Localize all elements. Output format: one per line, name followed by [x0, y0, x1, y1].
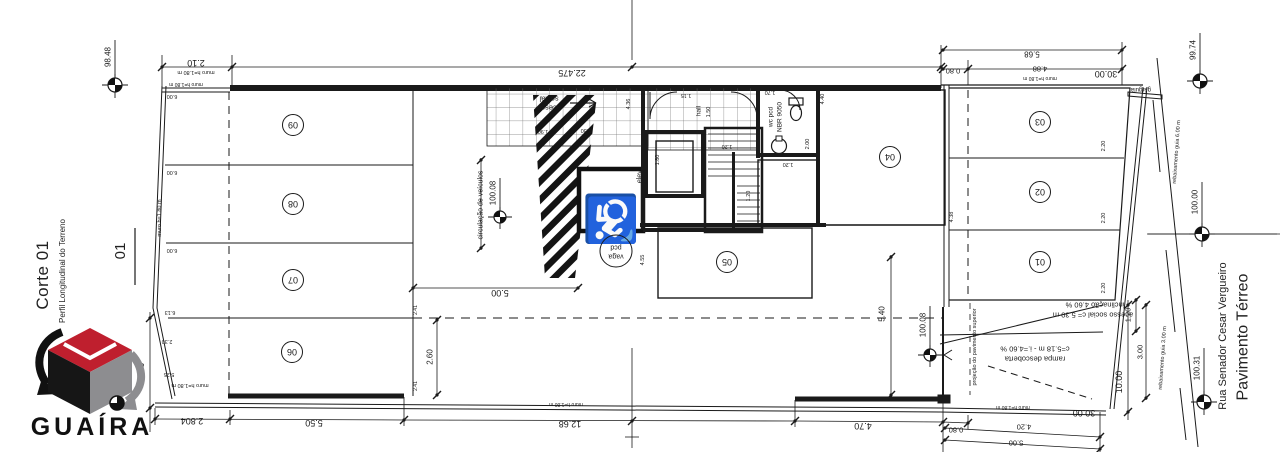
dim-label: 2.30: [162, 338, 173, 344]
level-marker: 100.31: [1191, 348, 1217, 415]
note-label: rampa descoberta: [1004, 355, 1065, 364]
dim-label: 1.20: [746, 191, 752, 202]
dim-label: 4.38: [949, 212, 955, 223]
note-label: rebaixamento guia 3.00 m: [1158, 326, 1168, 390]
level-value: 100.00: [1191, 189, 1200, 214]
dim-label: 1.80: [655, 155, 661, 166]
dim-label: 30.00: [1073, 408, 1096, 418]
dim-label: 2.41: [413, 305, 419, 315]
dim-label: 3.00: [1136, 345, 1145, 360]
stall-number: 02: [1035, 187, 1045, 197]
dim-label: 1.90: [538, 128, 549, 134]
zone-label: pcd: [610, 244, 621, 251]
street-name-label: Rua Senador Cesar Vergueiro: [1218, 262, 1230, 409]
dim-label: 10.00: [1114, 371, 1124, 394]
level-value: 100.08: [919, 312, 928, 337]
logo-wordmark: GUAÍRA: [31, 414, 154, 440]
stall-number: 06: [287, 347, 297, 357]
dim-label: 30.00: [1095, 69, 1118, 79]
dim-label: 5.68: [1024, 50, 1040, 59]
level-value: 100.08: [489, 180, 498, 205]
level-marker: 100.00: [1147, 182, 1277, 247]
dim-label: muro h=1.80 m: [171, 382, 209, 388]
section-mark-label: 01: [113, 243, 129, 260]
level-marker: 100.08: [918, 306, 942, 367]
dim-label: muro h=1.80 m: [1023, 75, 1057, 81]
dim-label: 4.70: [854, 421, 872, 431]
dim-label: 5.25: [164, 371, 175, 377]
level-value: 100.31: [1193, 355, 1202, 380]
room-label: wc pcd: [768, 107, 775, 129]
dim-label: 2.60: [426, 349, 435, 365]
level-marker: 98.48: [102, 40, 128, 98]
note-label: gárgula: [1130, 86, 1151, 92]
note-label: acesso social c= 5.30 m: [1053, 311, 1133, 320]
dim-label: 0.80: [949, 426, 964, 435]
level-value: 98.48: [104, 46, 113, 67]
stall-number: 07: [288, 275, 298, 285]
wheelchair-icon: ♿: [582, 192, 639, 245]
note-label: rebaixamento guia 6.00 m: [1172, 120, 1182, 184]
room-label: NBR 9050: [777, 102, 784, 132]
note-label: inclinação 4.60 %: [1065, 301, 1124, 310]
guaira-logo: [37, 328, 141, 414]
ramp-arrow-icon: [944, 350, 952, 360]
dim-label: 6.00: [167, 93, 178, 99]
dim-label: 2.00: [805, 139, 811, 150]
dim-label: 2.20: [1101, 141, 1107, 152]
floor-level-label: Pavimento Térreo: [1236, 274, 1253, 401]
dim-label: 5.40: [878, 306, 887, 322]
note-label: c=5.18 m - i.=4.60 %: [1000, 345, 1070, 354]
dim-label: muro h=1.80 m: [157, 199, 163, 237]
room-label: social: [539, 95, 559, 104]
dim-label: 4.55: [640, 255, 646, 266]
stall-number: 04: [885, 152, 895, 162]
room-label: acesso: [537, 104, 561, 113]
level-marker: 99.74: [1187, 33, 1213, 94]
level-marker: 100.08: [488, 178, 512, 229]
dim-label: 4.88: [1033, 65, 1048, 74]
dim-label: 5.50: [305, 418, 323, 428]
stall-number: 05: [722, 257, 732, 267]
dim-label: 1.70: [765, 89, 776, 95]
dim-label: 2.30: [581, 127, 592, 133]
dim-label: 1.20: [783, 161, 794, 167]
stall-number: 08: [288, 199, 298, 209]
stall-number: 01: [1035, 257, 1045, 267]
dim-label: 4.40: [820, 94, 826, 105]
dim-label: 2.10: [187, 58, 205, 68]
dim-label: 12.68: [559, 419, 582, 429]
toilet-tank-icon: [789, 98, 803, 105]
dim-label: 4.20: [1017, 423, 1032, 432]
dim-label: 6.00: [167, 247, 178, 253]
stall-number: 03: [1035, 117, 1045, 127]
accessible-parking: ♿: [579, 169, 643, 267]
gargula-icon: [1128, 92, 1162, 99]
dim-label: 1.50: [706, 107, 712, 118]
floor-plan-sheet: ♿: [0, 0, 1280, 452]
dim-label: 5.00: [491, 288, 509, 298]
plan-drawing: ♿: [0, 0, 1280, 452]
dim-label: 22.475: [558, 68, 586, 78]
stall-number: 09: [288, 120, 298, 130]
level-value: 99.74: [1189, 39, 1198, 60]
room-label: hall: [696, 105, 703, 116]
dim-label: 0.80: [946, 67, 961, 76]
room-label: elev.: [637, 169, 644, 183]
dim-label: 2.20: [1101, 283, 1107, 294]
zone-label: vaga: [608, 253, 623, 260]
dim-label: 2.20: [1101, 213, 1107, 224]
dim-label: 1.15: [681, 92, 692, 98]
dim-label: 5.00: [1009, 439, 1024, 448]
dim-label: 1.20: [1124, 308, 1133, 323]
dim-label: 1.20: [722, 143, 733, 149]
dim-label: muro h=1.80 m: [177, 69, 215, 75]
section-title: Corte 01: [34, 240, 52, 309]
dim-label: 6.00: [167, 169, 178, 175]
note-label: projeção do pavimento superior: [972, 308, 978, 385]
dim-label: 2.41: [413, 381, 419, 391]
dim-label: 4.36: [626, 99, 632, 110]
dim-label: 6.13: [165, 309, 176, 315]
dim-label: muro h=1.80 m: [996, 404, 1030, 410]
dim-label: muro h=1.80 m: [549, 401, 583, 407]
faucet-icon: [776, 136, 782, 141]
section-subtitle: Perfil Longitudinal do Terreno: [59, 219, 67, 323]
zone-label: circulação de veículos: [478, 170, 485, 239]
dim-label: muro h=1.80 m: [169, 81, 203, 87]
dim-label: 2.804: [181, 416, 204, 426]
